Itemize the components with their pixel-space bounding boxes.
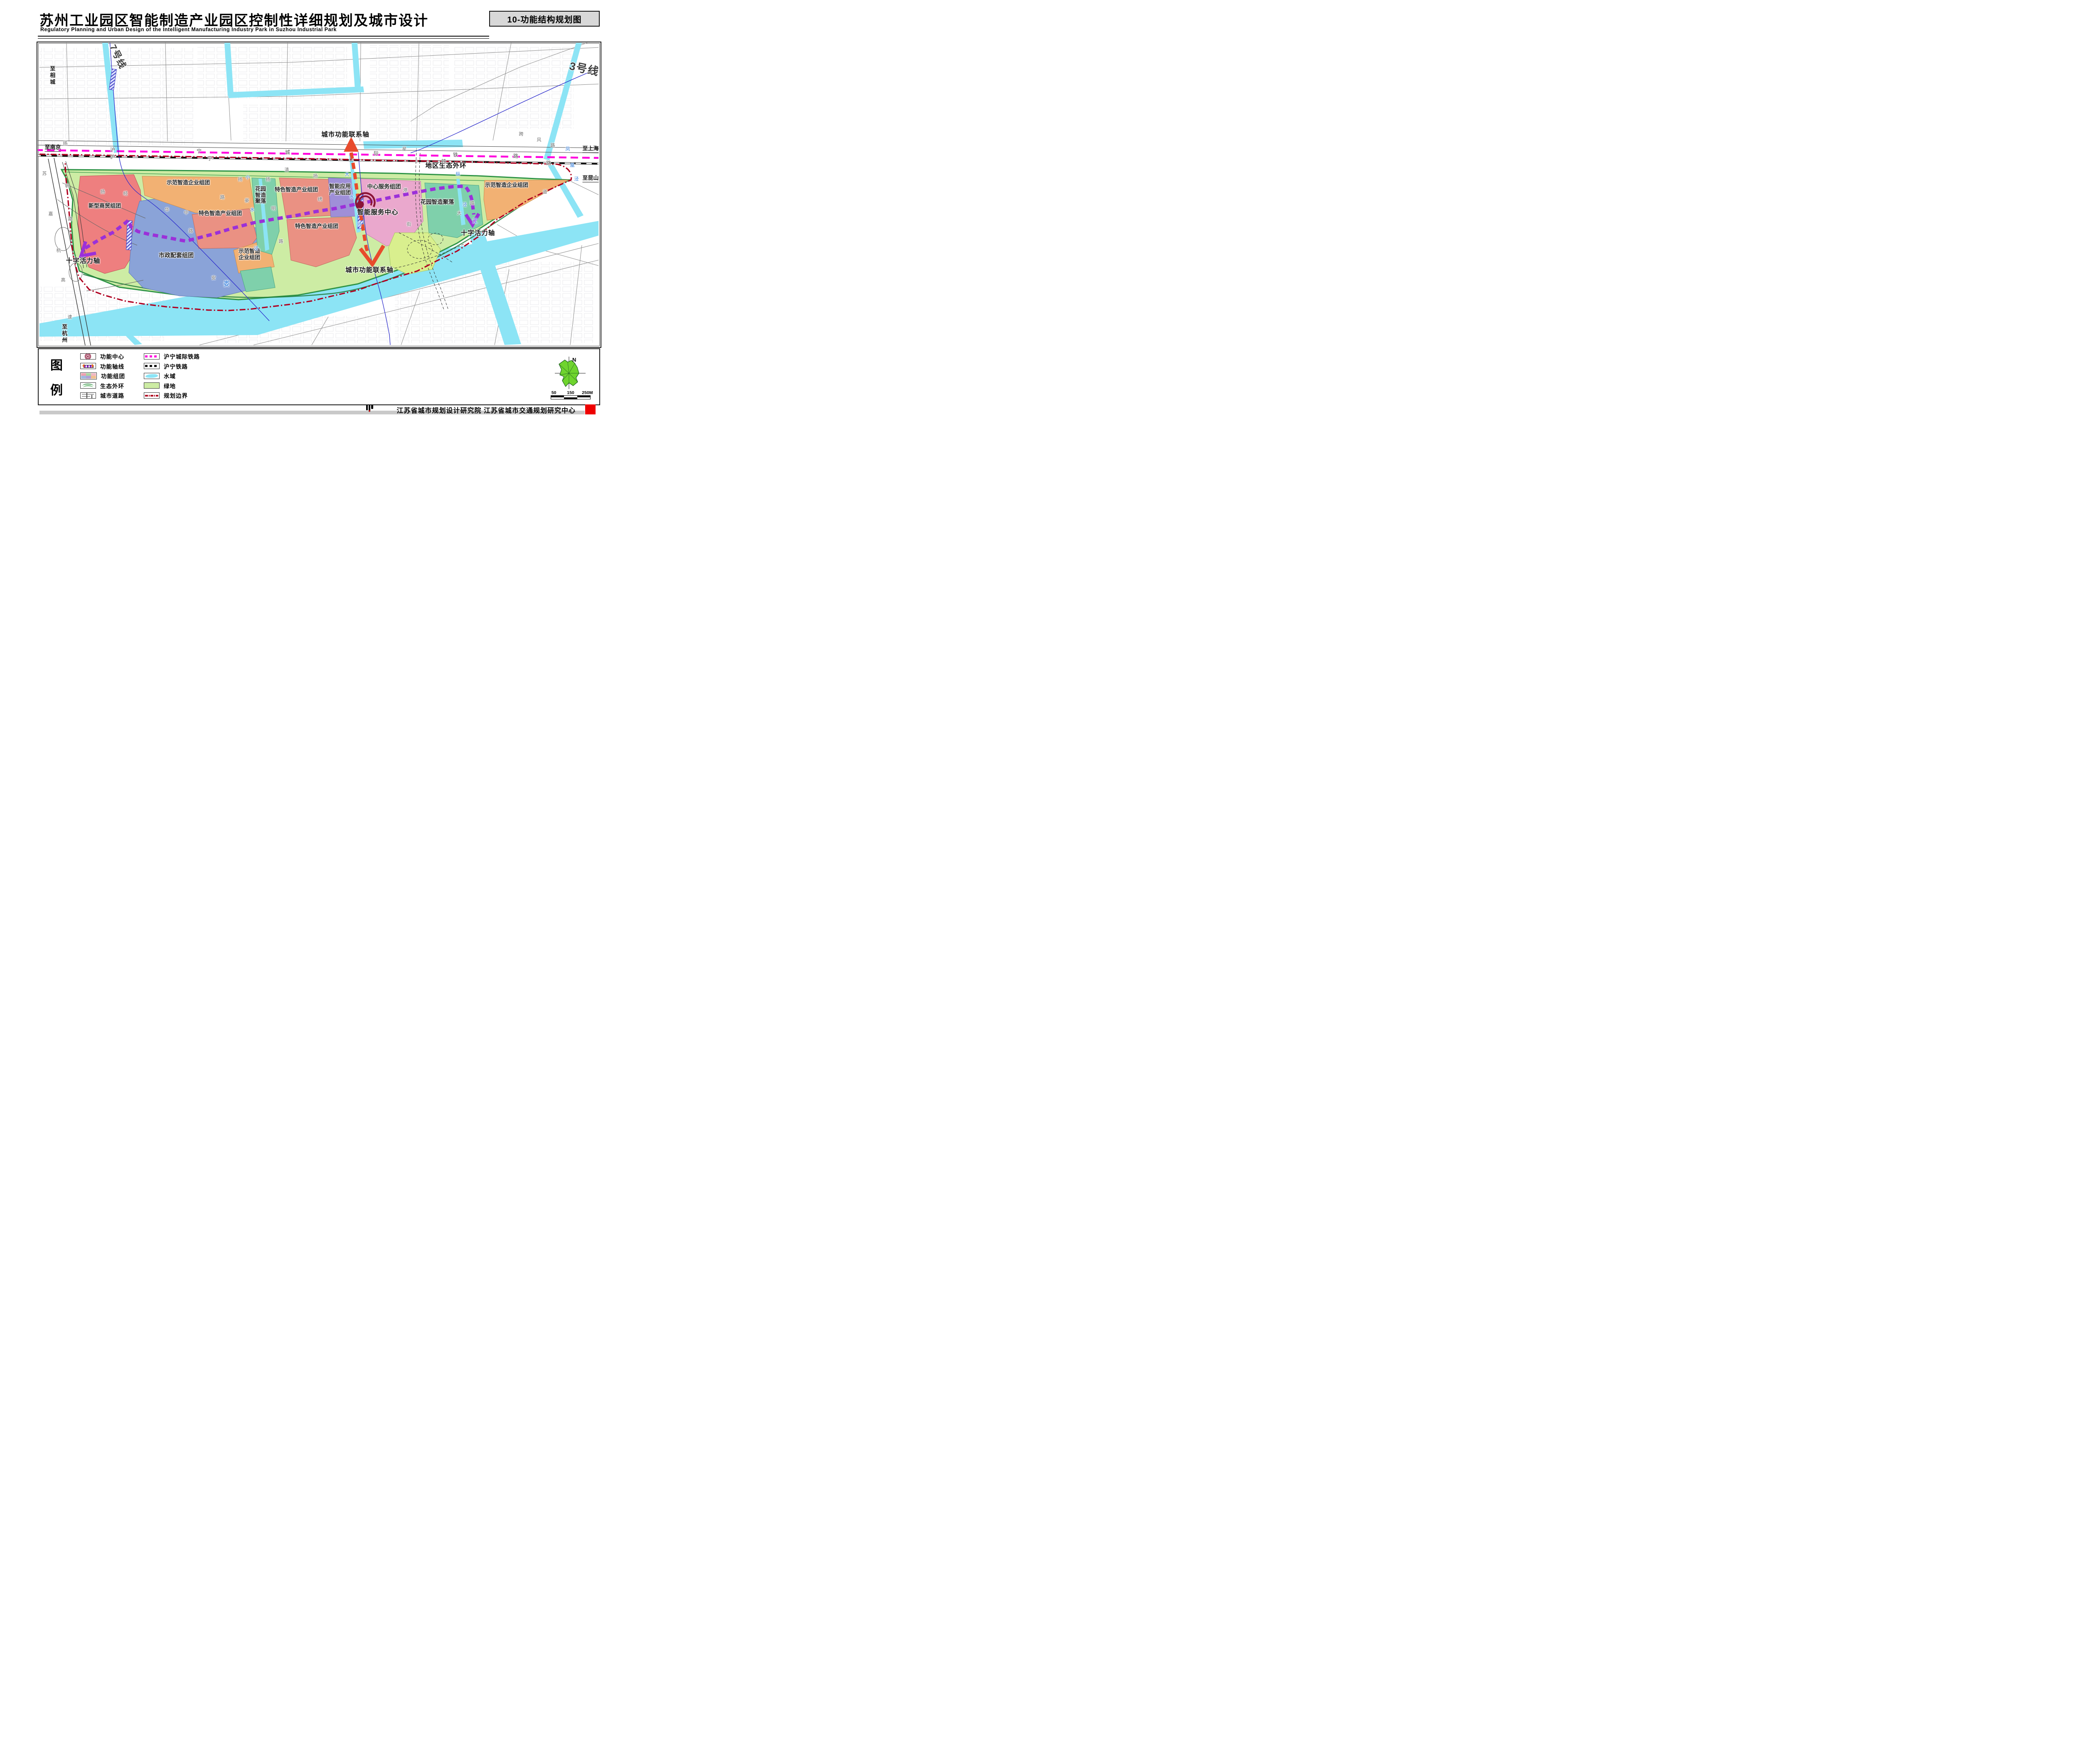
scale-label-150: 150 [567,390,574,395]
legend-item-eco: 生态外环 [80,383,125,389]
legend-label: 功能中心 [100,352,124,360]
scale-bar-graphic [551,395,591,399]
legend-label: 绿地 [164,382,176,390]
legend-icon-road [80,392,96,399]
jsupdi-logo [366,404,374,413]
legend-label: 功能组团 [101,372,125,380]
scale-bar: 50 150 250M [551,390,591,399]
legend-label: 生态外环 [100,382,124,390]
zone-demo-east-shape [484,180,569,220]
legend-icon-bound [144,392,160,399]
legend-label: 功能轴线 [100,362,124,370]
zone-featured1-shape [192,209,257,249]
legend-item-center: 功能中心 [80,353,125,359]
red-corner-block [585,404,596,414]
legend-item-road: 城市道路 [80,392,125,398]
legend: 图例 功能中心功能轴线功能组团生态外环城市道路 沪宁城际铁路沪宁铁路水域绿地规划… [38,348,600,405]
credits-text: 江苏省城市规划设计研究院 江苏省城市交通规划研究中心 [397,405,576,415]
legend-item-cluster: 功能组团 [80,373,125,379]
legend-icon-axisline [80,363,96,369]
legend-item-hsr: 沪宁城际铁路 [144,353,200,359]
legend-label: 规划边界 [164,391,188,399]
legend-icon-cluster [80,372,97,379]
compass-north-label: N [572,357,576,363]
legend-icon-eco [80,382,96,389]
scale-label-50: 50 [552,390,556,395]
legend-label: 城市道路 [100,391,124,399]
legend-icon-rail [144,363,160,369]
legend-label: 水域 [164,372,176,380]
legend-icon-center [80,353,96,360]
legend-label: 沪宁城际铁路 [164,352,200,360]
legend-item-axisline: 功能轴线 [80,363,125,369]
legend-item-water: 水域 [144,373,200,379]
legend-title: 图例 [50,355,64,398]
legend-icon-green [144,382,160,389]
legend-icon-water [144,373,160,379]
legend-icon-hsr [144,353,160,360]
legend-item-rail: 沪宁铁路 [144,363,200,369]
legend-item-bound: 规划边界 [144,392,200,398]
scale-label-250: 250M [582,390,593,395]
legend-column-right: 沪宁城际铁路沪宁铁路水域绿地规划边界 [144,353,200,398]
legend-item-green: 绿地 [144,383,200,389]
plan-sheet: 苏州工业园区智能制造产业园区控制性详细规划及城市设计 Regulatory Pl… [0,0,623,441]
compass-windrose: N [554,356,587,391]
legend-label: 沪宁铁路 [164,362,188,370]
legend-column-left: 功能中心功能轴线功能组团生态外环城市道路 [80,353,125,398]
credits-bar: 江苏省城市规划设计研究院 江苏省城市交通规划研究中心 [38,404,598,415]
